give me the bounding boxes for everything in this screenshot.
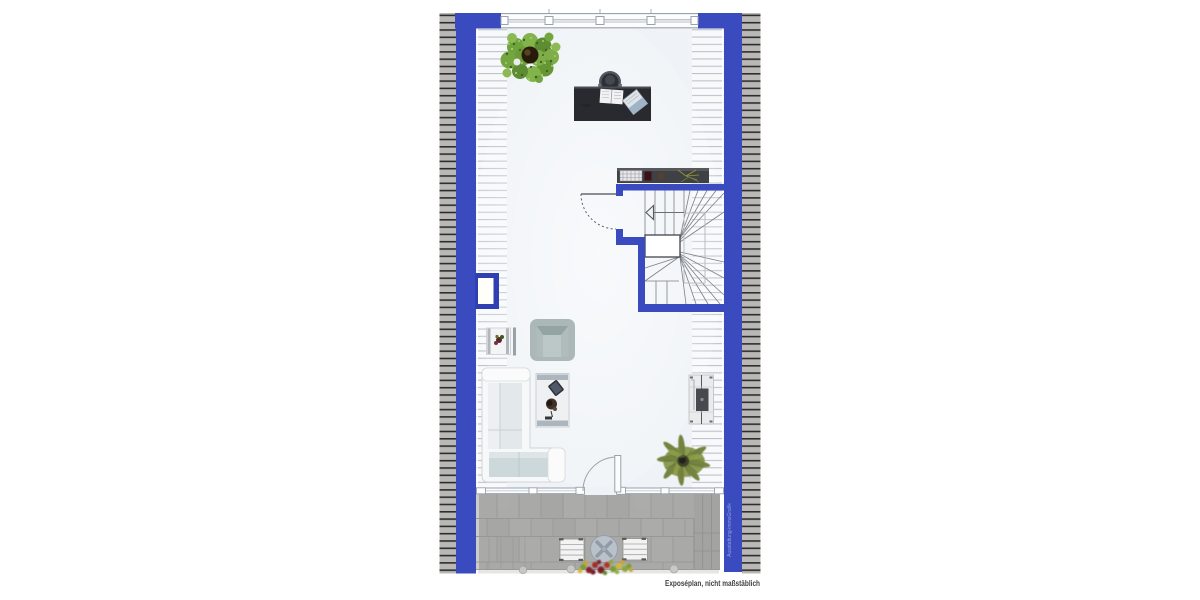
svg-text:Exposéplan, nicht maßstäblich: Exposéplan, nicht maßstäblich xyxy=(665,579,760,588)
svg-text:Ausstattung-immoGrafik: Ausstattung-immoGrafik xyxy=(727,503,733,557)
